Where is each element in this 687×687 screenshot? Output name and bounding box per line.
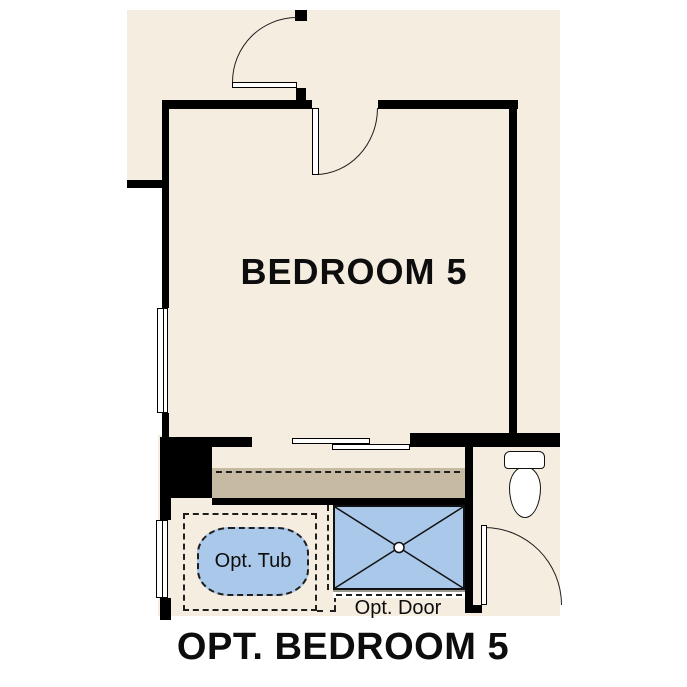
door-leaf bbox=[481, 525, 487, 605]
wall bbox=[160, 498, 171, 520]
window-icon bbox=[157, 308, 168, 413]
wall bbox=[160, 437, 252, 447]
wall bbox=[296, 88, 306, 100]
opt-door-label: Opt. Door bbox=[338, 597, 458, 619]
optional-area-outline bbox=[317, 610, 336, 612]
wall bbox=[163, 100, 312, 109]
wall bbox=[378, 100, 518, 109]
wall bbox=[465, 605, 482, 613]
toilet-tank bbox=[504, 451, 545, 469]
plan-caption: OPT. BEDROOM 5 bbox=[93, 628, 593, 666]
sliding-closet-door-panel bbox=[332, 444, 410, 450]
floor-plan: Opt. Tub BEDROOM 5 Opt. Door OPT. BEDROO… bbox=[0, 0, 687, 687]
wall bbox=[410, 433, 560, 447]
wall bbox=[212, 498, 473, 505]
wall bbox=[465, 440, 473, 613]
room-label: BEDROOM 5 bbox=[204, 252, 504, 292]
wall bbox=[509, 100, 517, 435]
window-icon bbox=[156, 520, 168, 598]
door-leaf bbox=[312, 108, 319, 175]
optional-wall-dashed-line bbox=[216, 471, 460, 473]
wall bbox=[162, 413, 169, 438]
optional-area-outline bbox=[334, 597, 336, 610]
optional-wall-dashed-line bbox=[327, 505, 329, 590]
door-leaf bbox=[232, 82, 297, 88]
wall bbox=[160, 447, 212, 498]
wall bbox=[162, 100, 169, 308]
floor-area-top-hall bbox=[127, 10, 560, 100]
wall bbox=[160, 598, 171, 620]
opt-tub-label: Opt. Tub bbox=[215, 550, 292, 573]
bathtub-icon: Opt. Tub bbox=[197, 527, 309, 596]
shower-icon bbox=[333, 505, 465, 590]
wall bbox=[127, 180, 163, 188]
